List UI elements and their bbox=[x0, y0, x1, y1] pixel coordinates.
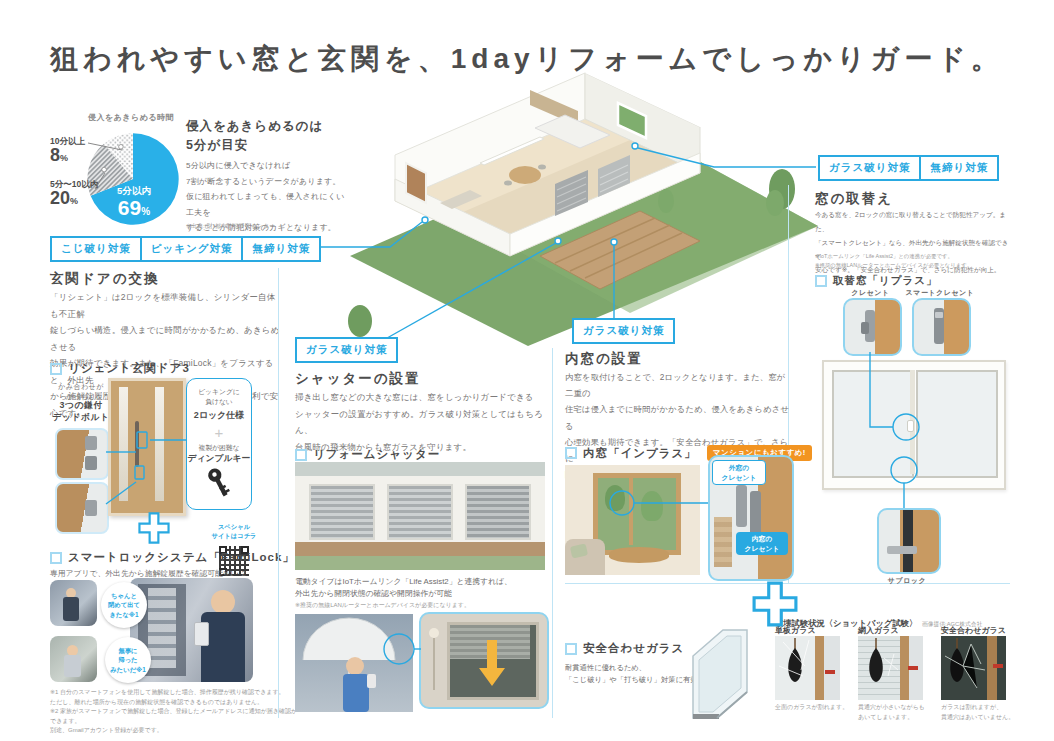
shutter-iot-note: ※推奨の無線LANルーターとホームデバイスが必要になります。 bbox=[295, 601, 470, 611]
page-title: 狙われやすい窓と玄関を、1dayリフォームでしっかりガード。 bbox=[0, 40, 1054, 78]
crescent-label: クレセント bbox=[838, 288, 903, 298]
outer-crescent-label: 外窓の クレセント bbox=[712, 460, 766, 485]
replace-tags: ガラス破り対策 無締り対策 bbox=[818, 155, 999, 181]
familock-footnotes: ※1 自分のスマートフォンを使用して施解錠した場合、操作履歴が残り確認できます。… bbox=[50, 688, 300, 736]
pie-unit-3: % bbox=[141, 206, 150, 217]
arrow-down-icon bbox=[477, 640, 507, 688]
speech-bubble-1: ちゃんと 閉めて出て きたな※1 bbox=[101, 582, 147, 628]
test3-photo bbox=[941, 636, 1006, 700]
tag-kojiyaburi: こじ破り対策 bbox=[50, 236, 142, 262]
shutter-closing-photo bbox=[419, 612, 549, 709]
tag-glass-break-inner: ガラス破り対策 bbox=[572, 318, 675, 344]
smart-crescent-label: スマートクレセント bbox=[905, 288, 975, 298]
shutter-heading: シャッターの設置 bbox=[295, 370, 421, 388]
inner-window-tag: ガラス破り対策 bbox=[572, 318, 675, 344]
lock-caption-bold: 2ロック仕様 bbox=[187, 409, 251, 422]
living-room-photo bbox=[565, 465, 700, 575]
door-product: リシェント玄関ドア3 bbox=[50, 361, 190, 376]
shutter-house-photo bbox=[295, 462, 545, 570]
replace-heading: 窓の取替え bbox=[815, 190, 893, 208]
pie-value-over10-num: 8 bbox=[50, 145, 60, 165]
product-bullet-icon bbox=[295, 449, 307, 461]
tag-glass-break-right: ガラス破り対策 bbox=[818, 155, 921, 181]
door-handle bbox=[135, 421, 139, 467]
inner-window-product-label: 内窓「インプラス」 bbox=[583, 446, 697, 461]
plus-icon-right bbox=[752, 581, 798, 627]
deadbolt-photo-1 bbox=[55, 428, 109, 480]
sublock-label: サブロック bbox=[877, 576, 937, 586]
tag-mushimari: 無締り対策 bbox=[241, 236, 321, 262]
lock-caption-small: ピッキングに 負けない bbox=[187, 387, 251, 407]
product-bullet-icon bbox=[50, 552, 62, 564]
shutter-product-label: リフォームシャッター bbox=[313, 447, 440, 462]
product-bullet-icon bbox=[565, 643, 577, 655]
brochure-page: 狙われやすい窓と玄関を、1dayリフォームでしっかりガード。 侵入をあきらめる時… bbox=[0, 0, 1054, 741]
smart-crescent-photo bbox=[912, 298, 971, 356]
intro-heading-line1: 侵入をあきらめるのは bbox=[186, 119, 323, 133]
inner-crescent-label: 内窓の クレセント bbox=[736, 532, 788, 555]
sublock-photo bbox=[877, 508, 941, 574]
pie-value-in5-num: 69 bbox=[118, 196, 141, 219]
house-illustration bbox=[330, 62, 820, 352]
shotbag-icon bbox=[858, 636, 923, 700]
replacement-window-illustration bbox=[822, 360, 1006, 490]
intro-heading: 侵入をあきらめるのは5分が目安 bbox=[186, 117, 341, 156]
test2-photo bbox=[858, 636, 923, 700]
test2-name: 網入ガラス bbox=[858, 625, 899, 636]
test1-photo bbox=[775, 636, 840, 700]
shutter-tag: ガラス破り対策 bbox=[295, 337, 398, 363]
safety-glass-body: 耐貫通性に優れるため、 「こじ破り」や「打ち破り」対策に有効 bbox=[565, 662, 698, 687]
product-bullet-icon bbox=[50, 363, 62, 375]
pie-value-mid-num: 20 bbox=[50, 188, 70, 208]
shotbag-icon bbox=[941, 636, 1006, 700]
pie-value-over10: 8% bbox=[50, 145, 68, 166]
dimple-key-icon bbox=[196, 460, 242, 506]
speech-bubble-2: 無事に 帰った みたいだ※1 bbox=[105, 637, 151, 683]
tag-picking: ピッキング対策 bbox=[140, 236, 244, 262]
replace-product-label: 取替窓「リプラス」 bbox=[833, 274, 937, 288]
divider-vertical-middle bbox=[552, 348, 553, 718]
shutter-body: 掃き出し窓などの大きな窓には、窓をしっかりガードできる シャッターの設置がおすす… bbox=[295, 389, 547, 455]
test2-caption: 貫通穴が小さいながらも あいてしまいます。 bbox=[858, 703, 938, 722]
smartphone bbox=[194, 622, 209, 646]
familock-photo-child bbox=[50, 636, 97, 682]
replace-notes: ※IoTホームリンク「Life Assist2」との連携が必要です。 ※推奨の無… bbox=[815, 252, 972, 269]
door-tags: こじ破り対策 ピッキング対策 無締り対策 bbox=[50, 236, 321, 262]
shotbag-icon bbox=[775, 636, 840, 700]
crescent-photo bbox=[843, 298, 902, 356]
entrance-door-photo bbox=[108, 378, 186, 516]
door-heading: 玄関ドアの交換 bbox=[50, 270, 159, 288]
intro-heading-line2: 5分が目安 bbox=[186, 138, 248, 152]
test1-caption: 全面のガラスが割れます。 bbox=[775, 703, 853, 713]
pie-unit: % bbox=[60, 153, 68, 163]
bolt-caption-bold: 3つの鎌付 デッドボルト bbox=[44, 400, 118, 424]
pie-unit-2: % bbox=[70, 196, 78, 206]
key-caption-small: 複製が困難な bbox=[187, 443, 251, 453]
shutter-iot-text: 電動タイプはIoTホームリンク「Life Assist2」と連携すれば、 外出先… bbox=[295, 576, 512, 600]
pie-value-mid: 20% bbox=[50, 188, 78, 209]
door-product-label: リシェント玄関ドア3 bbox=[68, 361, 190, 376]
familock-product-label: スマートロックシステム「FamiLock」 bbox=[68, 550, 295, 565]
pie-value-in5: 69% bbox=[98, 196, 170, 220]
laminated-glass-illustration bbox=[683, 626, 755, 722]
plus-icon-door bbox=[138, 512, 170, 544]
safety-glass-product-label: 安全合わせガラス bbox=[583, 641, 684, 656]
familock-product: スマートロックシステム「FamiLock」 bbox=[50, 550, 295, 565]
divider-vertical-left bbox=[278, 268, 279, 718]
shutter-product: リフォームシャッター bbox=[295, 447, 440, 462]
bolt-caption-small: かみ合わせが がっちり bbox=[46, 382, 116, 402]
deadbolt-photo-2 bbox=[55, 482, 109, 534]
replace-product: 取替窓「リプラス」 bbox=[815, 274, 937, 288]
familock-photo-leaving bbox=[50, 580, 97, 626]
test3-caption: ガラスは割れますが、 貫通穴はあいていません。 bbox=[941, 703, 1021, 722]
plus-divider-icon: + bbox=[187, 425, 251, 440]
tag-glass-break-shutter: ガラス破り対策 bbox=[295, 337, 398, 363]
lock-callout-box: ピッキングに 負けない 2ロック仕様 + 複製が困難な ディンプルキー bbox=[186, 378, 252, 510]
tag-mushimari-right: 無締り対策 bbox=[919, 155, 999, 181]
test3-name: 安全合わせガラス bbox=[941, 625, 1006, 636]
pie-chart-title: 侵入をあきらめる時間 bbox=[76, 112, 186, 123]
qr-label: スペシャル サイトはコチラ bbox=[206, 523, 262, 541]
intro-source: ※出典:(財)都市防犯研究センター bbox=[186, 222, 275, 232]
safety-glass-product: 安全合わせガラス bbox=[565, 641, 684, 656]
crescent-lock-on-window bbox=[907, 420, 914, 432]
umbrella-icon bbox=[295, 614, 413, 712]
product-bullet-icon bbox=[815, 275, 827, 287]
umbrella-photo bbox=[295, 614, 413, 712]
inner-window-heading: 内窓の設置 bbox=[565, 350, 643, 368]
product-bullet-icon bbox=[565, 447, 577, 459]
